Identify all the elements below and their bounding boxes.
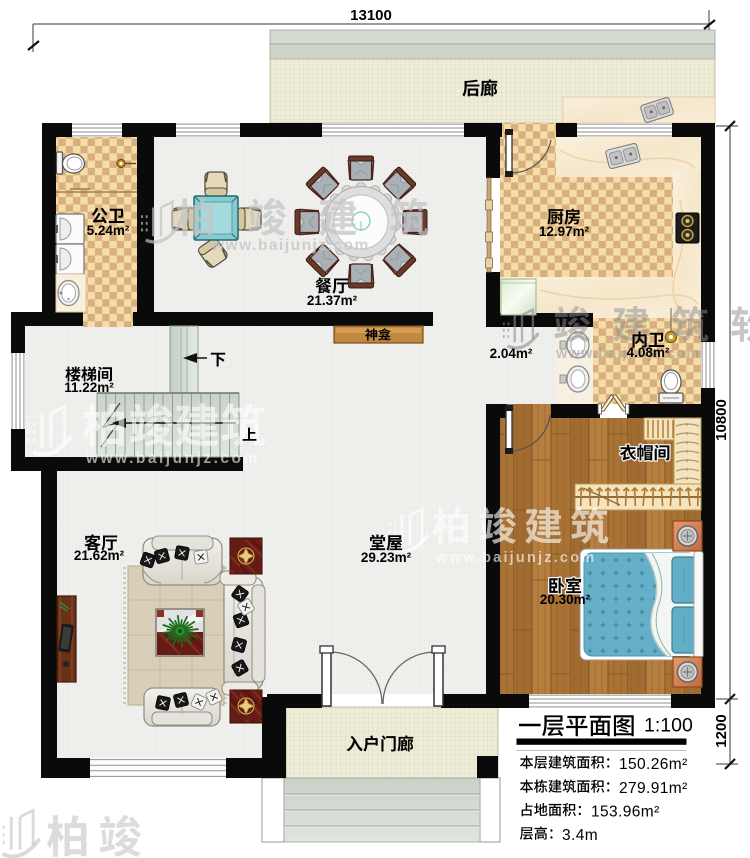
svg-text:29.23m²: 29.23m²	[361, 550, 412, 565]
svg-text:3.4m: 3.4m	[562, 827, 598, 844]
svg-text:1:100: 1:100	[644, 715, 693, 737]
svg-text:2.04m²: 2.04m²	[490, 346, 533, 361]
svg-text:www.baijunjz.com: www.baijunjz.com	[85, 450, 260, 467]
svg-text:4.08m²: 4.08m²	[627, 345, 670, 360]
svg-text:11.22m²: 11.22m²	[64, 380, 114, 395]
svg-text:www.baijunjz.com: www.baijunjz.com	[211, 237, 370, 254]
svg-text:20.30m²: 20.30m²	[540, 592, 591, 607]
svg-text:21.62m²: 21.62m²	[74, 548, 125, 563]
svg-text:www.baijunjz.com: www.baijunjz.com	[435, 550, 596, 566]
svg-text:1200: 1200	[713, 714, 730, 747]
svg-text:5.24m²: 5.24m²	[87, 223, 130, 238]
svg-text:13100: 13100	[350, 7, 392, 24]
svg-text:150.26m²: 150.26m²	[619, 756, 688, 773]
svg-text:21.37m²: 21.37m²	[307, 293, 358, 308]
svg-text:279.91m²: 279.91m²	[619, 780, 688, 797]
svg-text:153.96m²: 153.96m²	[591, 804, 660, 821]
svg-text:12.97m²: 12.97m²	[539, 224, 590, 239]
svg-text:10800: 10800	[713, 399, 730, 441]
